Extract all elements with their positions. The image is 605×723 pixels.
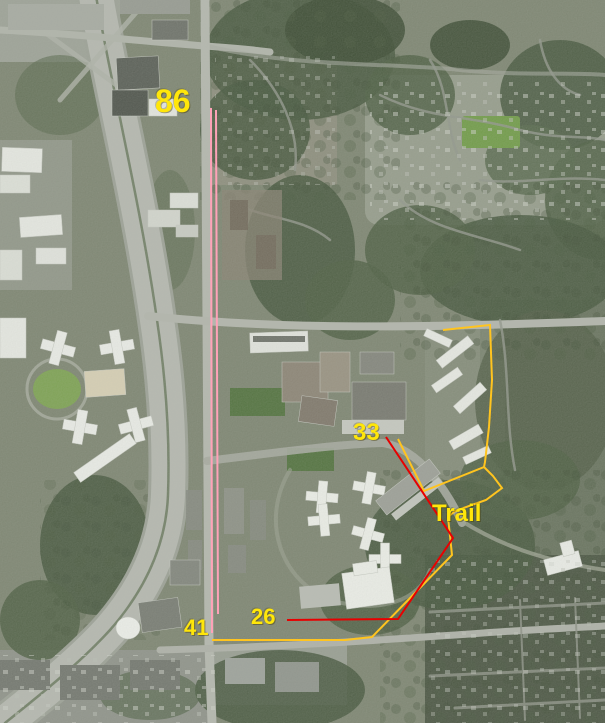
label-trail: Trail (432, 502, 481, 526)
label-33: 33 (353, 421, 380, 445)
label-86: 86 (155, 85, 191, 117)
label-26: 26 (251, 606, 275, 628)
label-41: 41 (184, 617, 208, 639)
satellite-map-background (0, 0, 605, 723)
map-canvas[interactable]: 86 33 Trail 26 41 (0, 0, 605, 723)
